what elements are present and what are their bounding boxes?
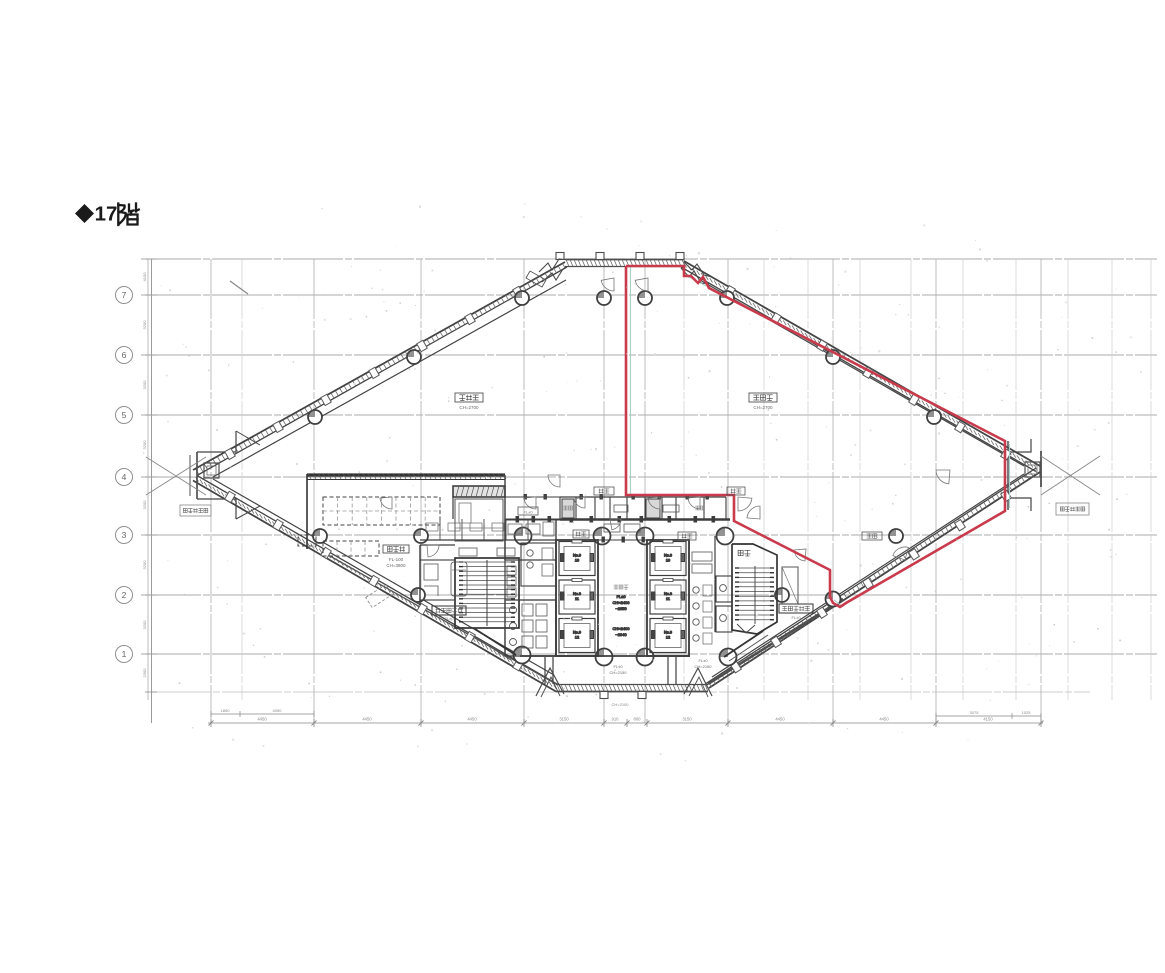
- svg-text:3075: 3075: [970, 710, 980, 715]
- svg-text:4450: 4450: [879, 717, 889, 722]
- svg-text:No.9: No.9: [573, 554, 581, 558]
- svg-text:3200: 3200: [142, 440, 147, 450]
- svg-text:No.9: No.9: [664, 592, 672, 596]
- svg-text:3150: 3150: [559, 717, 569, 722]
- svg-text:FL±0: FL±0: [791, 615, 801, 620]
- svg-text:4450: 4450: [775, 717, 785, 722]
- svg-text:10: 10: [575, 559, 579, 563]
- svg-text:4150: 4150: [983, 717, 993, 722]
- svg-text:CH=2150: CH=2150: [694, 664, 712, 669]
- svg-text:3200: 3200: [142, 620, 147, 630]
- svg-text:5: 5: [122, 410, 127, 420]
- svg-text:6: 6: [122, 350, 127, 360]
- svg-text:3200: 3200: [142, 380, 147, 390]
- svg-text:910: 910: [612, 717, 620, 722]
- svg-text:FL±0: FL±0: [613, 664, 623, 669]
- svg-text:FL±0: FL±0: [616, 594, 626, 599]
- svg-text:No.9: No.9: [664, 554, 672, 558]
- svg-text:12: 12: [575, 636, 579, 640]
- svg-text:11: 11: [575, 597, 579, 601]
- svg-text:CH=3800: CH=3800: [386, 563, 406, 568]
- svg-text:CH=2150: CH=2150: [609, 670, 627, 675]
- svg-text:1025: 1025: [1022, 710, 1032, 715]
- svg-text:2: 2: [122, 590, 127, 600]
- svg-text:17: 17: [95, 203, 118, 226]
- svg-text:3200: 3200: [142, 320, 147, 330]
- svg-text:11: 11: [666, 597, 670, 601]
- svg-text:3200: 3200: [142, 500, 147, 510]
- svg-text:10: 10: [666, 559, 670, 563]
- svg-text:No.9: No.9: [573, 592, 581, 596]
- svg-text:3: 3: [122, 530, 127, 540]
- svg-text:4050: 4050: [273, 708, 283, 713]
- svg-text:FL±0: FL±0: [444, 616, 454, 621]
- svg-text:FL-100: FL-100: [389, 557, 404, 562]
- svg-text:4450: 4450: [467, 717, 477, 722]
- svg-text:FL±0: FL±0: [523, 510, 533, 515]
- svg-text:2300: 2300: [142, 668, 147, 678]
- svg-text:4450: 4450: [362, 717, 372, 722]
- svg-text:4: 4: [122, 472, 127, 482]
- svg-text:1850: 1850: [221, 708, 231, 713]
- svg-text:CH=2400: CH=2400: [612, 600, 630, 605]
- svg-text:4100: 4100: [142, 272, 147, 282]
- svg-text:No.9: No.9: [664, 631, 672, 635]
- svg-text:CH=2700: CH=2700: [753, 405, 773, 410]
- svg-text:~2640: ~2640: [615, 632, 627, 637]
- svg-text:800: 800: [634, 717, 642, 722]
- svg-text:CH=2100: CH=2100: [611, 702, 629, 707]
- svg-text:4450: 4450: [257, 717, 267, 722]
- svg-text:No.9: No.9: [573, 631, 581, 635]
- svg-text:7: 7: [122, 290, 127, 300]
- svg-text:CH=2400: CH=2400: [612, 626, 630, 631]
- svg-text:12: 12: [666, 636, 670, 640]
- svg-text:3200: 3200: [142, 560, 147, 570]
- svg-text:3150: 3150: [682, 717, 692, 722]
- svg-text:~2650: ~2650: [615, 606, 627, 611]
- svg-text:CH=2700: CH=2700: [459, 405, 479, 410]
- svg-text:1: 1: [122, 649, 127, 659]
- svg-text:FL±0: FL±0: [698, 658, 708, 663]
